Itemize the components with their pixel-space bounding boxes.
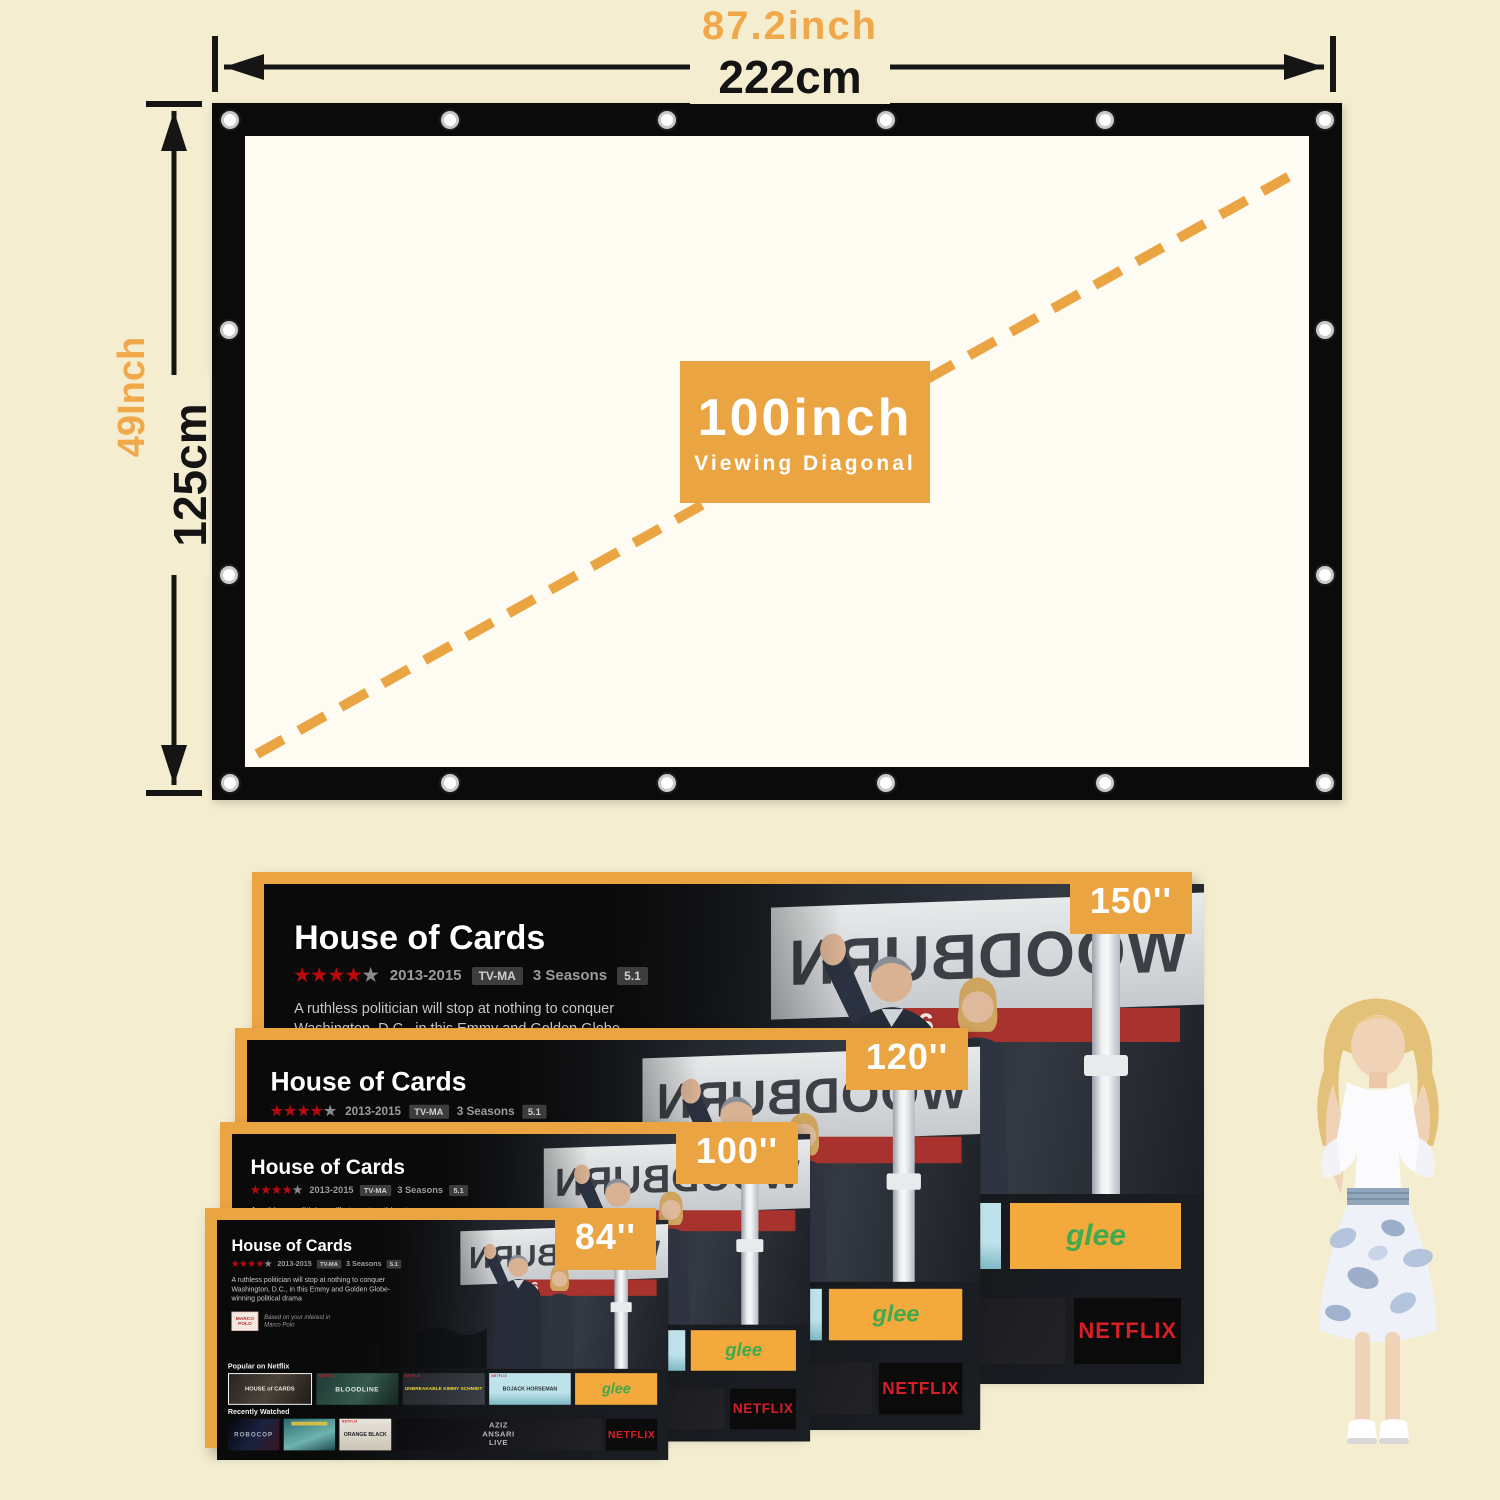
width-inch-label: 87.2inch: [640, 4, 940, 49]
related-poster: MARCO POLO: [231, 1312, 258, 1331]
thumbnail-bloodline: NETFLIXBLOODLINE: [316, 1373, 398, 1405]
thumbnail-glee: glee: [691, 1330, 796, 1371]
screen-size-badge: 100'': [676, 1122, 798, 1184]
seasons-label: 3 Seasons: [457, 1105, 515, 1118]
maturity-badge: TV-MA: [360, 1185, 392, 1196]
grommet: [1316, 774, 1334, 792]
grommet: [221, 774, 239, 792]
grommet: [220, 321, 238, 339]
thumbnail-movie: [284, 1419, 336, 1451]
popular-row: HOUSE of CARDS NETFLIXBLOODLINE NETFLIXU…: [228, 1373, 658, 1405]
woman-model-illustration: [1283, 988, 1473, 1468]
show-info-panel: House of Cards ★★★★★ 2013-2015 TV-MA 3 S…: [231, 1237, 421, 1331]
netflix-title: House of Cards: [250, 1156, 493, 1180]
score-badge: 5.1: [522, 1104, 546, 1118]
grommet: [441, 774, 459, 792]
diagonal-value: 100inch: [698, 388, 913, 448]
grommet: [877, 774, 895, 792]
thumbnail-house-of-cards: HOUSE of CARDS: [228, 1373, 312, 1405]
screen-size-badge: 150'': [1070, 872, 1192, 934]
screen-size-badge: 120'': [846, 1028, 968, 1090]
seasons-label: 3 Seasons: [397, 1185, 443, 1195]
netflix-logo-thumb: NETFLIX: [606, 1419, 658, 1451]
recent-row: ROBOCOP NETFLIXORANGE BLACK AZIZ ANSARI …: [228, 1419, 658, 1451]
netflix-logo-thumb: NETFLIX: [879, 1363, 963, 1414]
score-badge: 5.1: [386, 1260, 401, 1269]
seasons-label: 3 Seasons: [346, 1260, 382, 1268]
netflix-tag: NETFLIX: [319, 1375, 335, 1379]
row-label-recent: Recently Watched: [228, 1408, 658, 1416]
netflix-title: House of Cards: [270, 1067, 578, 1097]
empty-star: ★: [293, 1184, 304, 1196]
empty-star: ★: [363, 965, 380, 985]
netflix-logo-thumb: NETFLIX: [730, 1389, 796, 1430]
grommet: [220, 566, 238, 584]
show-meta-row: ★★★★★ 2013-2015 TV-MA 3 Seasons 5.1: [231, 1259, 421, 1269]
grommet: [1096, 774, 1114, 792]
year-range: 2013-2015: [277, 1260, 311, 1268]
thumbnail-kimmy-schmidt: NETFLIXUNBREAKABLE KIMMY SCHMIDT: [403, 1373, 485, 1405]
year-range: 2013-2015: [309, 1185, 353, 1195]
year-range: 2013-2015: [390, 967, 462, 984]
diagonal-size-label: 100inch Viewing Diagonal: [680, 361, 930, 503]
grommet: [221, 111, 239, 129]
maturity-badge: TV-MA: [317, 1260, 342, 1269]
height-inch-label: 49Inch: [111, 297, 151, 497]
thumbnail-aziz-ansari: AZIZ ANSARI LIVE: [395, 1419, 601, 1451]
star-rating: ★★★★★: [231, 1259, 272, 1269]
grommet: [1316, 321, 1334, 339]
netflix-logo-thumb: NETFLIX: [1074, 1298, 1181, 1364]
empty-star: ★: [324, 1103, 337, 1119]
grommet: [877, 111, 895, 129]
screen-size-badge: 84'': [555, 1208, 656, 1270]
show-meta-row: ★★★★★ 2013-2015 TV-MA 3 Seasons 5.1: [294, 965, 689, 986]
height-cm-label: 125cm: [163, 375, 209, 575]
row-label-popular: Popular on Netflix: [228, 1362, 658, 1370]
grommet: [441, 111, 459, 129]
grommet: [1316, 111, 1334, 129]
thumbnail-glee: glee: [829, 1289, 962, 1340]
thumbnail-robocop: ROBOCOP: [228, 1419, 280, 1451]
grommet: [1316, 566, 1334, 584]
thumbnail-glee: glee: [1010, 1203, 1181, 1269]
score-badge: 5.1: [449, 1185, 468, 1196]
thumbnail-bojack: NETFLIXBOJACK HORSEMAN: [489, 1373, 571, 1405]
related-row: MARCO POLO Based on your interest in Mar…: [231, 1312, 421, 1331]
product-image: 87.2inch 222cm 49Inch 125cm 100inch View…: [0, 0, 1500, 1500]
netflix-title: House of Cards: [294, 919, 689, 958]
maturity-badge: TV-MA: [472, 967, 523, 985]
main-projection-screen: 100inch Viewing Diagonal: [212, 103, 1342, 800]
show-description: A ruthless politician will stop at nothi…: [231, 1276, 405, 1304]
empty-star: ★: [264, 1259, 272, 1269]
seasons-label: 3 Seasons: [533, 967, 607, 984]
related-note: Based on your interest in Marco Polo: [264, 1314, 336, 1329]
netflix-tag: NETFLIX: [491, 1375, 507, 1379]
year-range: 2013-2015: [345, 1105, 401, 1118]
diagonal-caption: Viewing Diagonal: [694, 452, 915, 476]
score-badge: 5.1: [617, 967, 648, 985]
thumbnail-orange-black: NETFLIXORANGE BLACK: [340, 1419, 392, 1451]
thumbnail-glee: glee: [575, 1373, 657, 1405]
show-meta-row: ★★★★★ 2013-2015 TV-MA 3 Seasons 5.1: [270, 1103, 578, 1119]
show-meta-row: ★★★★★ 2013-2015 TV-MA 3 Seasons 5.1: [250, 1184, 493, 1197]
netflix-tag: NETFLIX: [405, 1375, 421, 1379]
grommet: [658, 111, 676, 129]
grommet: [658, 774, 676, 792]
star-rating: ★★★★★: [270, 1103, 337, 1119]
netflix-screen-84: 84'' WOODBURN 6 House of Cards: [205, 1208, 656, 1448]
grommet: [1096, 111, 1114, 129]
star-rating: ★★★★★: [250, 1184, 303, 1197]
star-rating: ★★★★★: [294, 965, 380, 986]
thumbnail-rows: Popular on Netflix HOUSE of CARDS NETFLI…: [217, 1359, 668, 1450]
maturity-badge: TV-MA: [409, 1104, 449, 1118]
width-cm-label: 222cm: [690, 50, 890, 104]
netflix-tag: NETFLIX: [342, 1420, 358, 1424]
netflix-title: House of Cards: [231, 1237, 421, 1256]
